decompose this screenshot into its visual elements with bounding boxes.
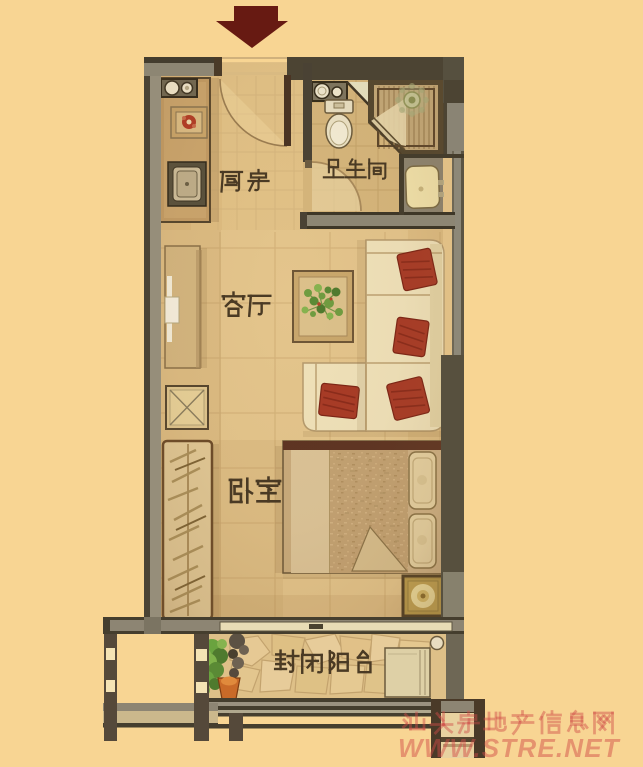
svg-text:WWW.STRE.NET: WWW.STRE.NET — [398, 733, 621, 763]
